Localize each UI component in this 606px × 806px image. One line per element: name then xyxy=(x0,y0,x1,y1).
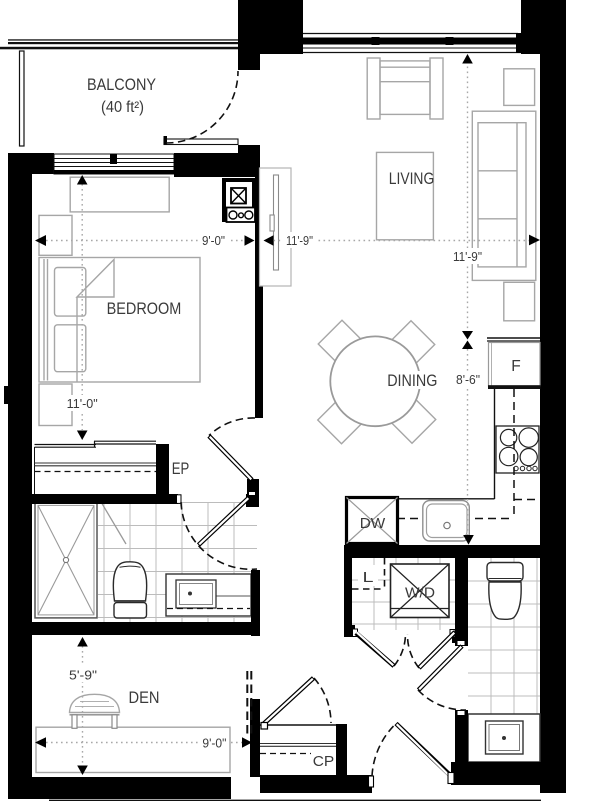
svg-text:W/D: W/D xyxy=(405,585,435,602)
svg-text:8'-6": 8'-6" xyxy=(456,373,480,387)
svg-text:11'-9": 11'-9" xyxy=(453,250,482,264)
svg-text:BALCONY: BALCONY xyxy=(87,75,156,94)
svg-text:BEDROOM: BEDROOM xyxy=(107,299,182,318)
svg-text:DINING: DINING xyxy=(387,371,437,390)
svg-text:EP: EP xyxy=(172,460,190,478)
svg-text:L: L xyxy=(363,569,374,586)
svg-text:9'-0": 9'-0" xyxy=(202,234,225,248)
svg-text:DW: DW xyxy=(360,515,386,532)
svg-text:11'-9": 11'-9" xyxy=(286,234,313,248)
svg-text:LIVING: LIVING xyxy=(389,169,435,188)
svg-text:F: F xyxy=(511,358,521,375)
svg-text:11'-0": 11'-0" xyxy=(67,397,98,411)
svg-text:CP: CP xyxy=(313,753,335,770)
svg-text:DEN: DEN xyxy=(129,688,160,707)
svg-text:5'-9": 5'-9" xyxy=(69,669,97,683)
svg-text:(40 ft²): (40 ft²) xyxy=(101,99,144,116)
svg-text:9'-0": 9'-0" xyxy=(202,737,226,751)
